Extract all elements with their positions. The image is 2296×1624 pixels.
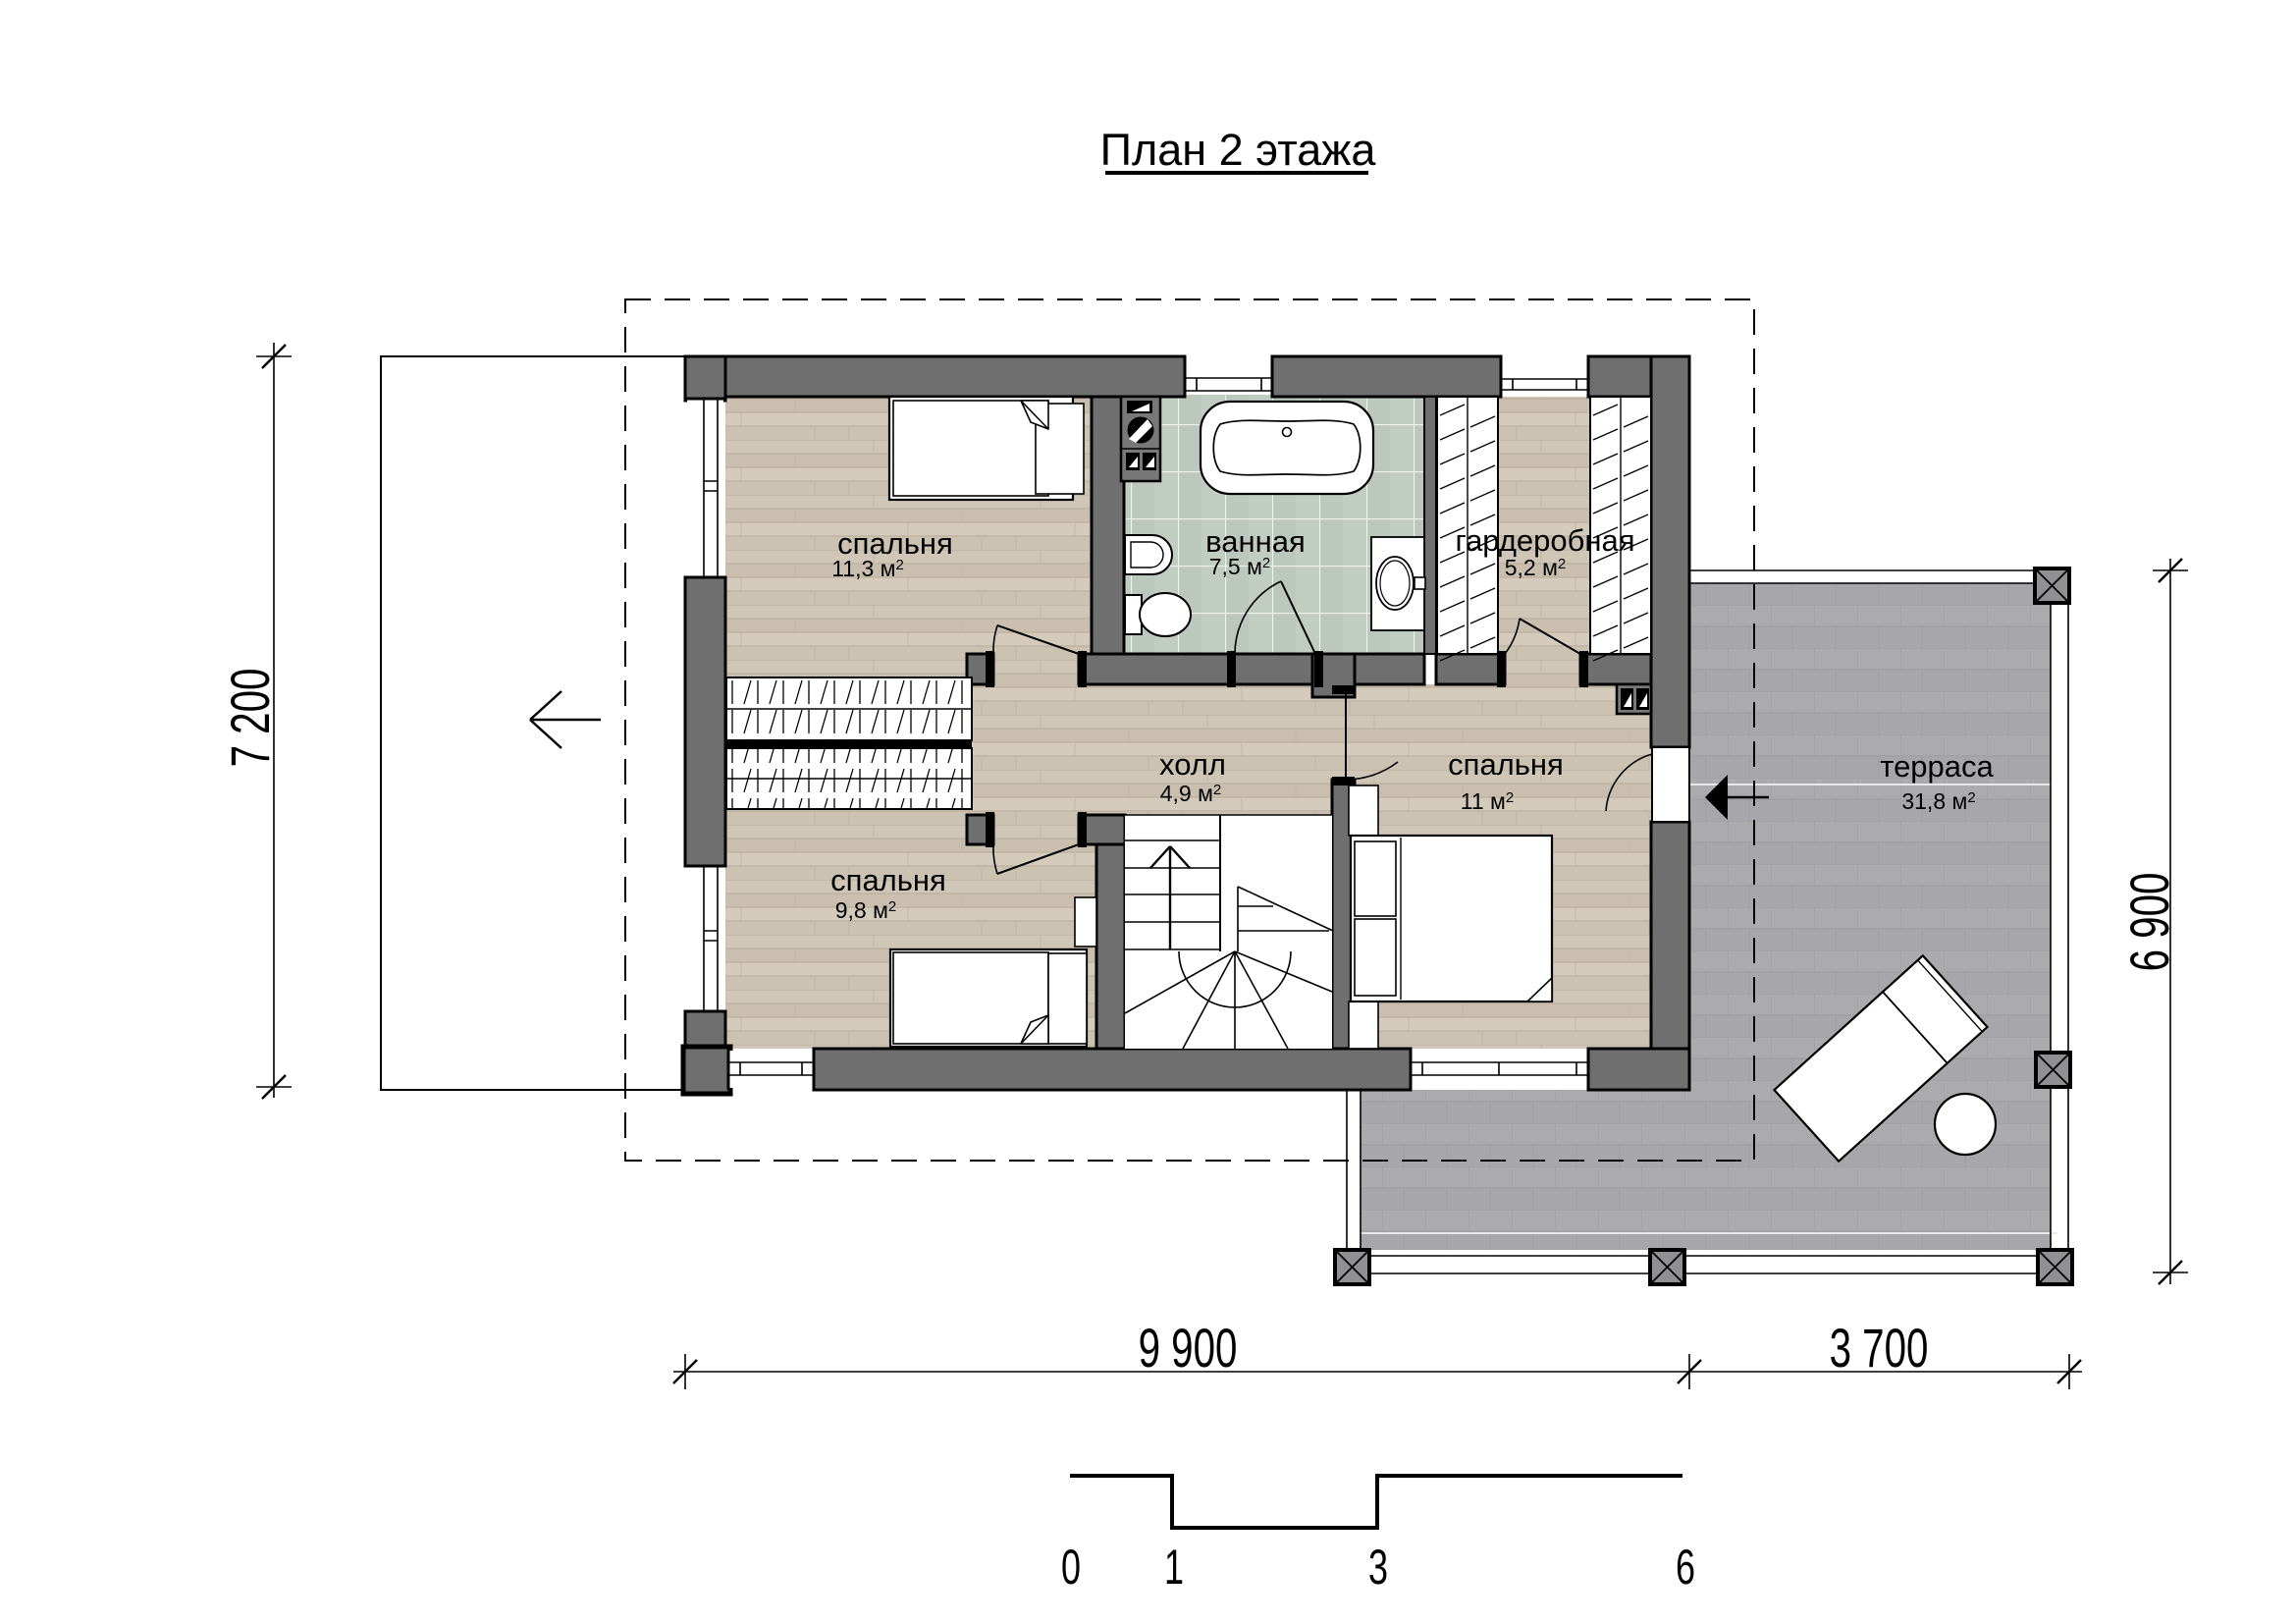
- svg-text:0: 0: [1061, 1541, 1081, 1595]
- svg-text:холл: холл: [1159, 747, 1226, 782]
- svg-text:терраса: терраса: [1880, 749, 1994, 784]
- svg-text:4,9 м2: 4,9 м2: [1160, 781, 1222, 806]
- svg-text:гардеробная: гардеробная: [1455, 523, 1634, 558]
- svg-text:5,2 м2: 5,2 м2: [1505, 555, 1567, 580]
- svg-text:11,3 м2: 11,3 м2: [831, 556, 904, 581]
- svg-text:6: 6: [1676, 1541, 1695, 1595]
- svg-text:1: 1: [1164, 1541, 1184, 1595]
- svg-text:3: 3: [1368, 1541, 1388, 1595]
- svg-text:9 900: 9 900: [1139, 1319, 1238, 1380]
- svg-text:спальня: спальня: [1448, 747, 1564, 782]
- svg-text:7 200: 7 200: [221, 669, 282, 768]
- svg-text:9,8 м2: 9,8 м2: [835, 897, 897, 923]
- svg-text:31,8 м2: 31,8 м2: [1901, 788, 1975, 814]
- svg-text:6 900: 6 900: [2120, 873, 2181, 972]
- svg-text:3 700: 3 700: [1830, 1319, 1929, 1380]
- svg-text:7,5 м2: 7,5 м2: [1209, 554, 1271, 579]
- svg-text:План 2 этажа: План 2 этажа: [1100, 125, 1377, 175]
- svg-text:спальня: спальня: [830, 863, 946, 897]
